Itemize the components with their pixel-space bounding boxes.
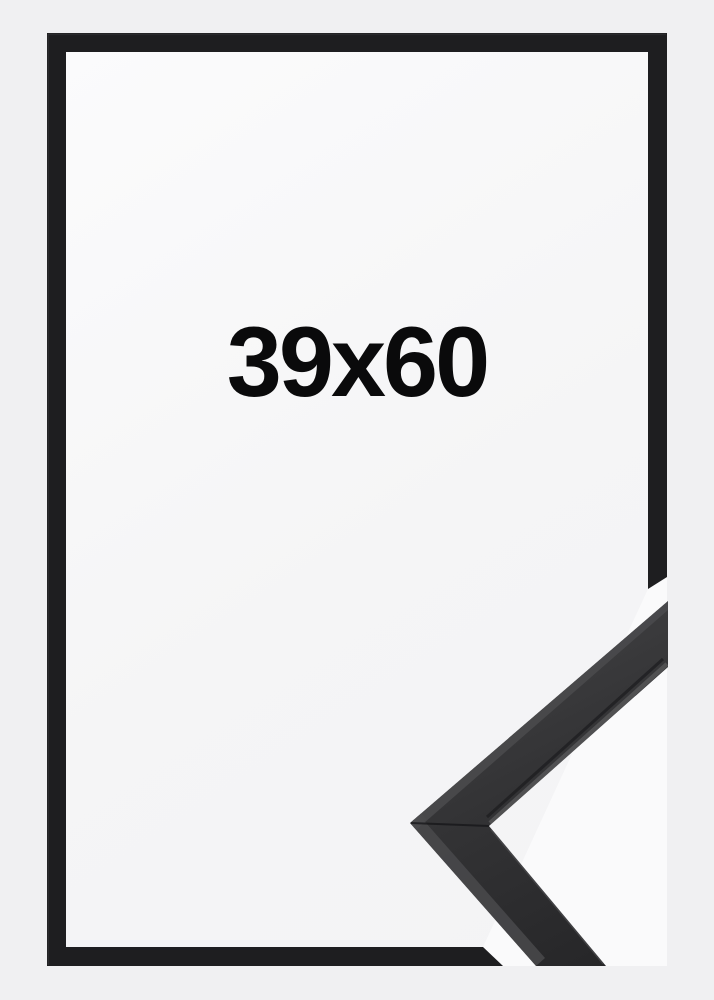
frame-illustration [0, 0, 714, 1000]
size-label: 39x60 [0, 300, 714, 424]
product-image: 39x60 [0, 0, 714, 1000]
